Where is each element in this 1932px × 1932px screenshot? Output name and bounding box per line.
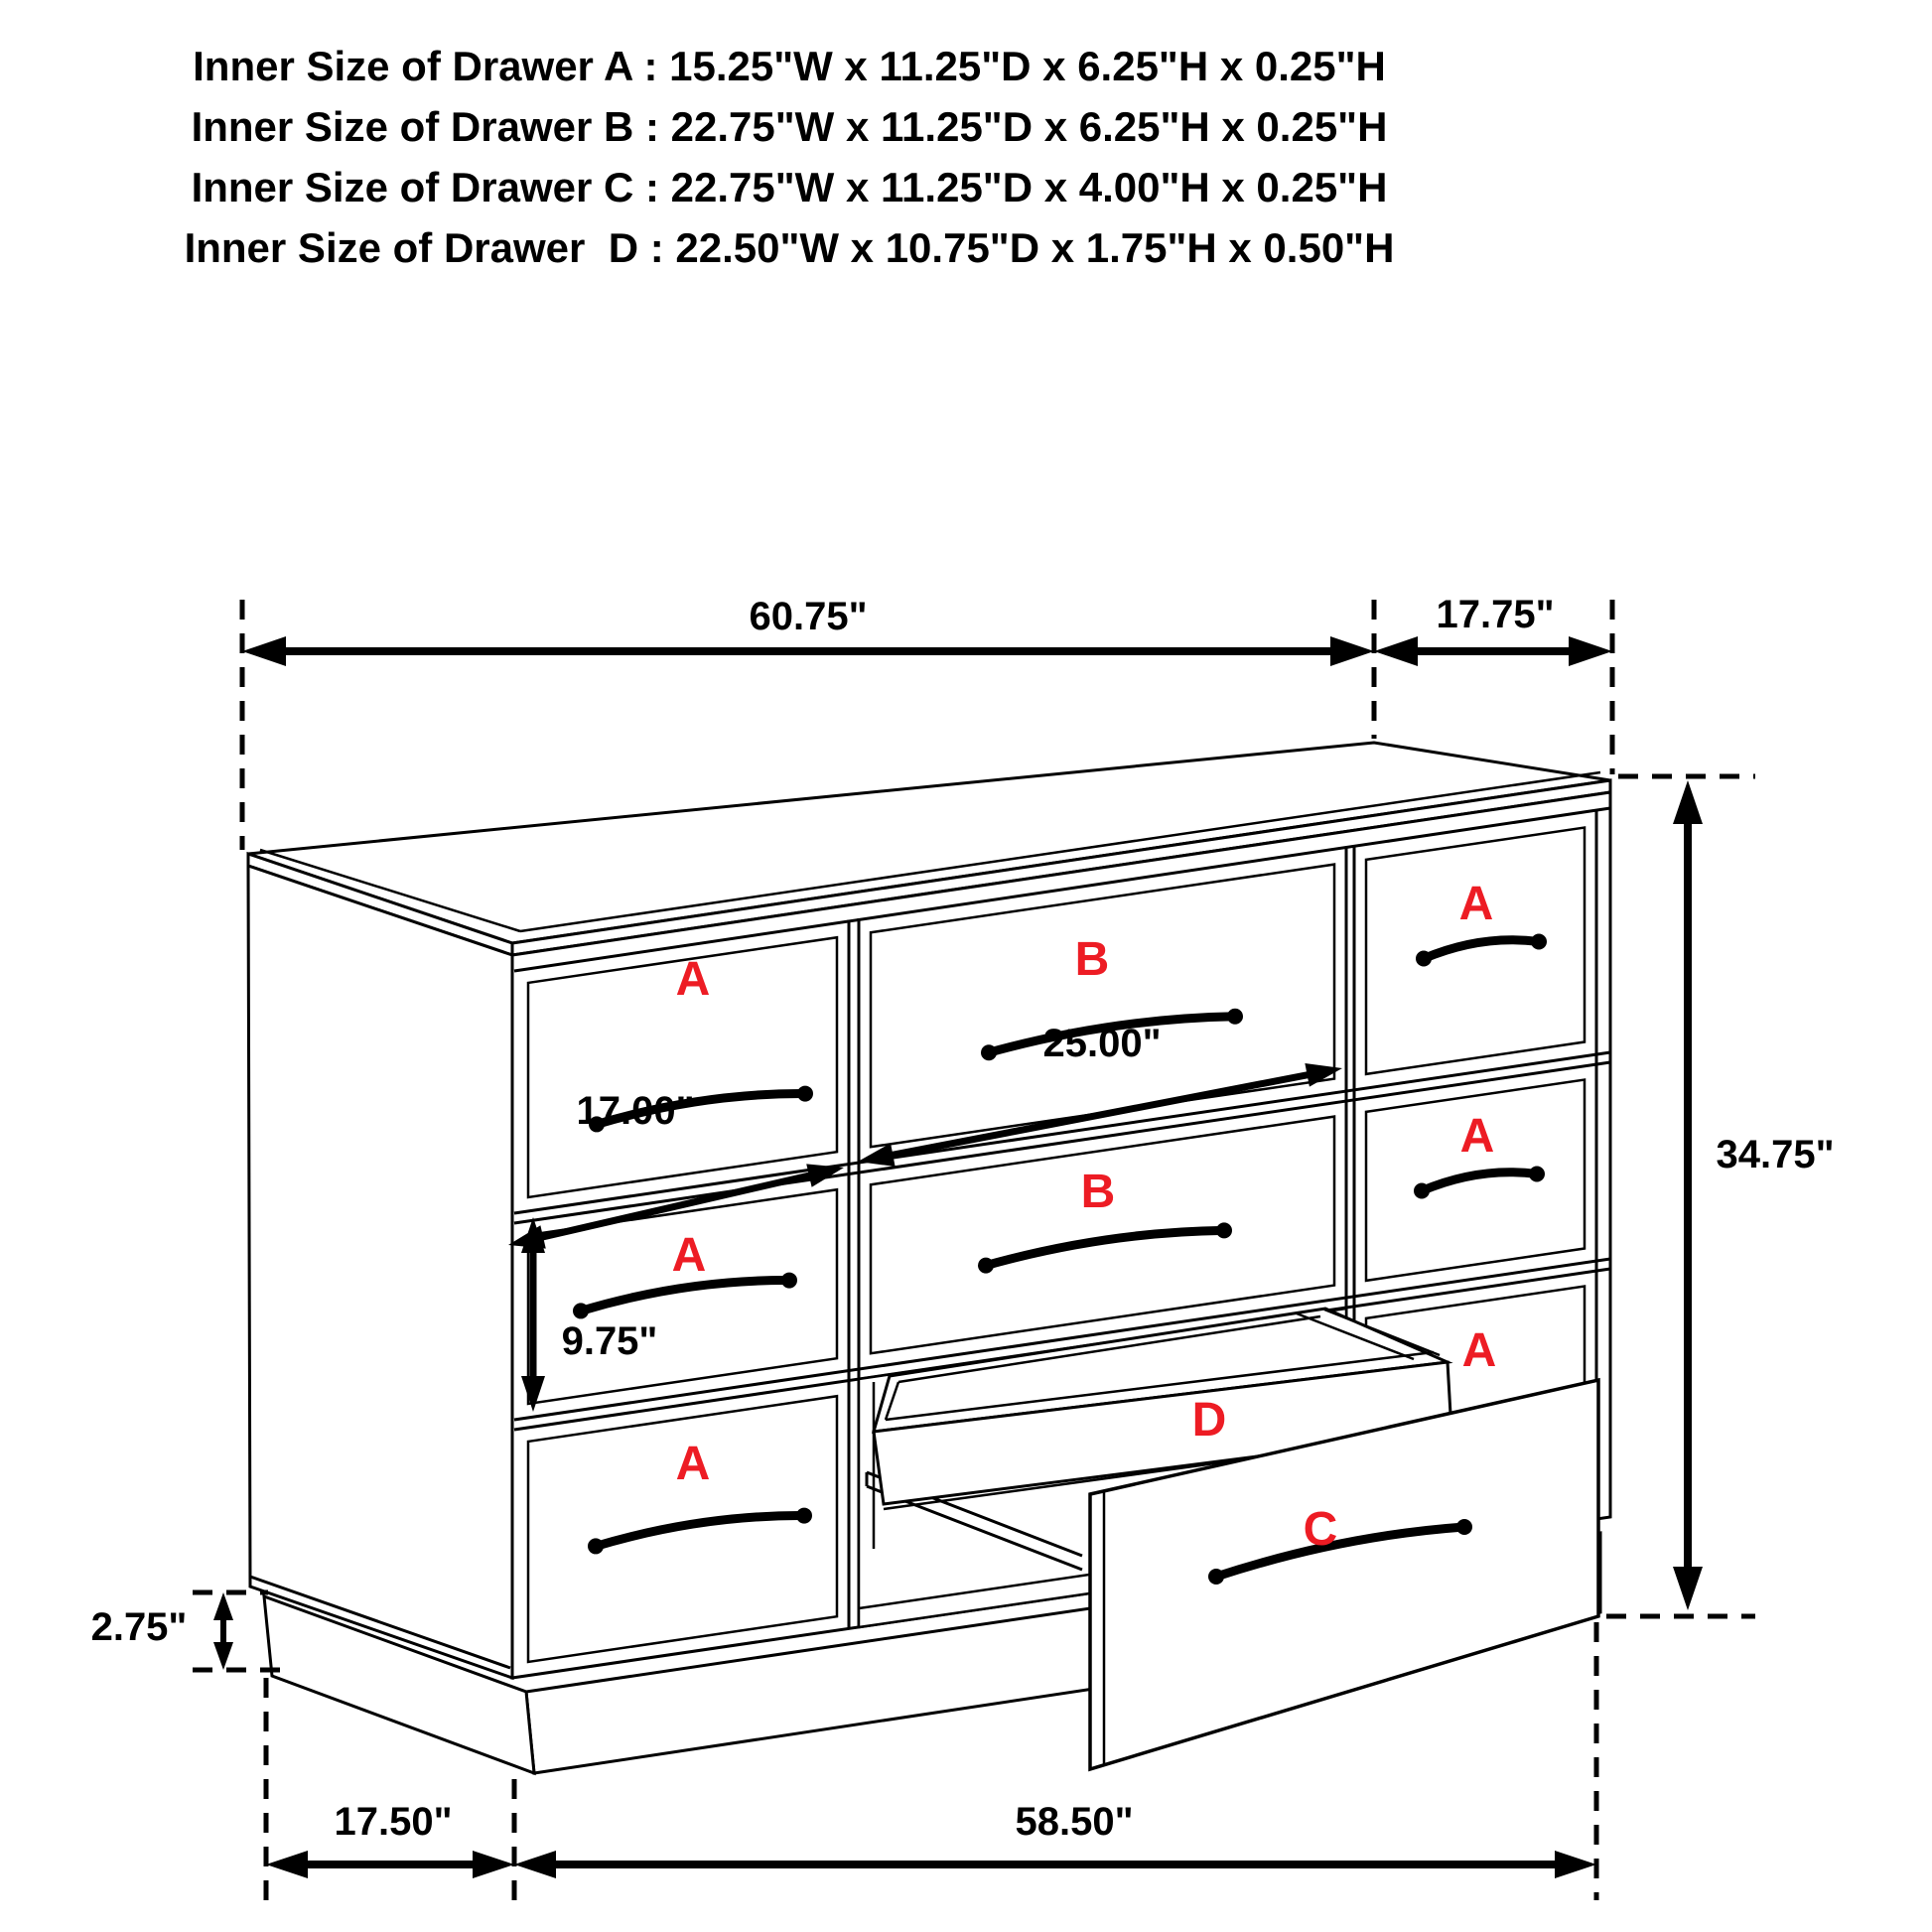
inner-size-header: Inner Size of Drawer A : 15.25"W x 11.25… — [0, 36, 1579, 278]
dresser-line-drawing: 60.75"17.75"34.75"17.00"25.00"9.75"2.75"… — [0, 0, 1932, 1932]
dim-base-height-arrowhead-icon — [213, 1592, 233, 1620]
dim-label-height: 34.75" — [1716, 1133, 1834, 1176]
dim-bottom-depth-arrowhead-icon — [266, 1851, 308, 1878]
dim-bottom-depth-arrowhead-icon — [473, 1851, 514, 1878]
drawer-letter-middle_column-0: B — [1075, 933, 1110, 986]
dim-height-arrowhead-icon — [1673, 780, 1703, 824]
drawer-letter-left_column-1: A — [672, 1229, 707, 1282]
dim-base-height-arrowhead-icon — [213, 1642, 233, 1670]
dim-label-top-depth: 17.75" — [1436, 593, 1554, 636]
handle-a2-right-icon-end — [1414, 1183, 1430, 1199]
drawer-letter-pulled-1: C — [1304, 1503, 1338, 1556]
handle-b2-icon-end — [978, 1258, 994, 1274]
dresser-dimension-diagram: Inner Size of Drawer A : 15.25"W x 11.25… — [0, 0, 1932, 1932]
dim-label-bottom-width: 58.50" — [1015, 1800, 1133, 1844]
inner-size-line-d: Inner Size of Drawer D : 22.50"W x 10.75… — [0, 217, 1579, 278]
drawer-letter-pulled-0: D — [1192, 1394, 1227, 1447]
drawer-letter-right_column-1: A — [1460, 1110, 1495, 1163]
handle-b1-icon-end — [1227, 1009, 1243, 1025]
dim-top-depth-arrowhead-icon — [1374, 636, 1418, 666]
dim-top-depth-arrowhead-icon — [1569, 636, 1612, 666]
handle-a1-left-icon-end — [797, 1086, 813, 1102]
dim-top-width-arrowhead-icon — [1330, 636, 1374, 666]
drawer-letter-left_column-0: A — [676, 953, 711, 1006]
dim-bottom-width-arrowhead-icon — [1555, 1851, 1596, 1878]
dim-label-middle-drawer-width: 25.00" — [1042, 1022, 1161, 1065]
drawer-letter-left_column-2: A — [676, 1438, 711, 1490]
dim-label-left-drawer-width: 17.00" — [576, 1089, 694, 1133]
dim-label-middle-drawer-height: 9.75" — [562, 1319, 658, 1363]
dim-bottom-width-arrowhead-icon — [514, 1851, 556, 1878]
dim-label-top-width: 60.75" — [749, 595, 867, 638]
dim-height-arrowhead-icon — [1673, 1567, 1703, 1610]
dim-label-bottom-depth: 17.50" — [334, 1800, 452, 1844]
left-side-panel — [248, 866, 512, 1678]
dim-label-base-height: 2.75" — [91, 1605, 188, 1649]
handle-c-icon-end — [1456, 1519, 1472, 1535]
handle-a2-left-icon-end — [573, 1303, 589, 1318]
dim-top-width-arrowhead-icon — [242, 636, 286, 666]
handle-a3-left-icon-end — [588, 1538, 604, 1554]
drawer-letter-middle_column-1: B — [1081, 1166, 1116, 1218]
handle-a1-right-icon-end — [1416, 951, 1432, 967]
handle-b2-icon-end — [1216, 1222, 1232, 1238]
handle-a2-left-icon-end — [781, 1273, 797, 1289]
handle-a2-right-icon-end — [1529, 1166, 1545, 1181]
drawer-letter-right_column-0: A — [1459, 878, 1494, 930]
inner-size-line-b: Inner Size of Drawer B : 22.75"W x 11.25… — [0, 96, 1579, 157]
inner-size-line-c: Inner Size of Drawer C : 22.75"W x 11.25… — [0, 157, 1579, 217]
handle-a1-right-icon-end — [1531, 933, 1547, 949]
drawer-letter-right_column-2: A — [1462, 1324, 1497, 1377]
handle-c-icon-end — [1208, 1569, 1224, 1585]
inner-size-line-a: Inner Size of Drawer A : 15.25"W x 11.25… — [0, 36, 1579, 96]
handle-b1-icon-end — [981, 1044, 997, 1060]
handle-a3-left-icon-end — [796, 1508, 812, 1524]
